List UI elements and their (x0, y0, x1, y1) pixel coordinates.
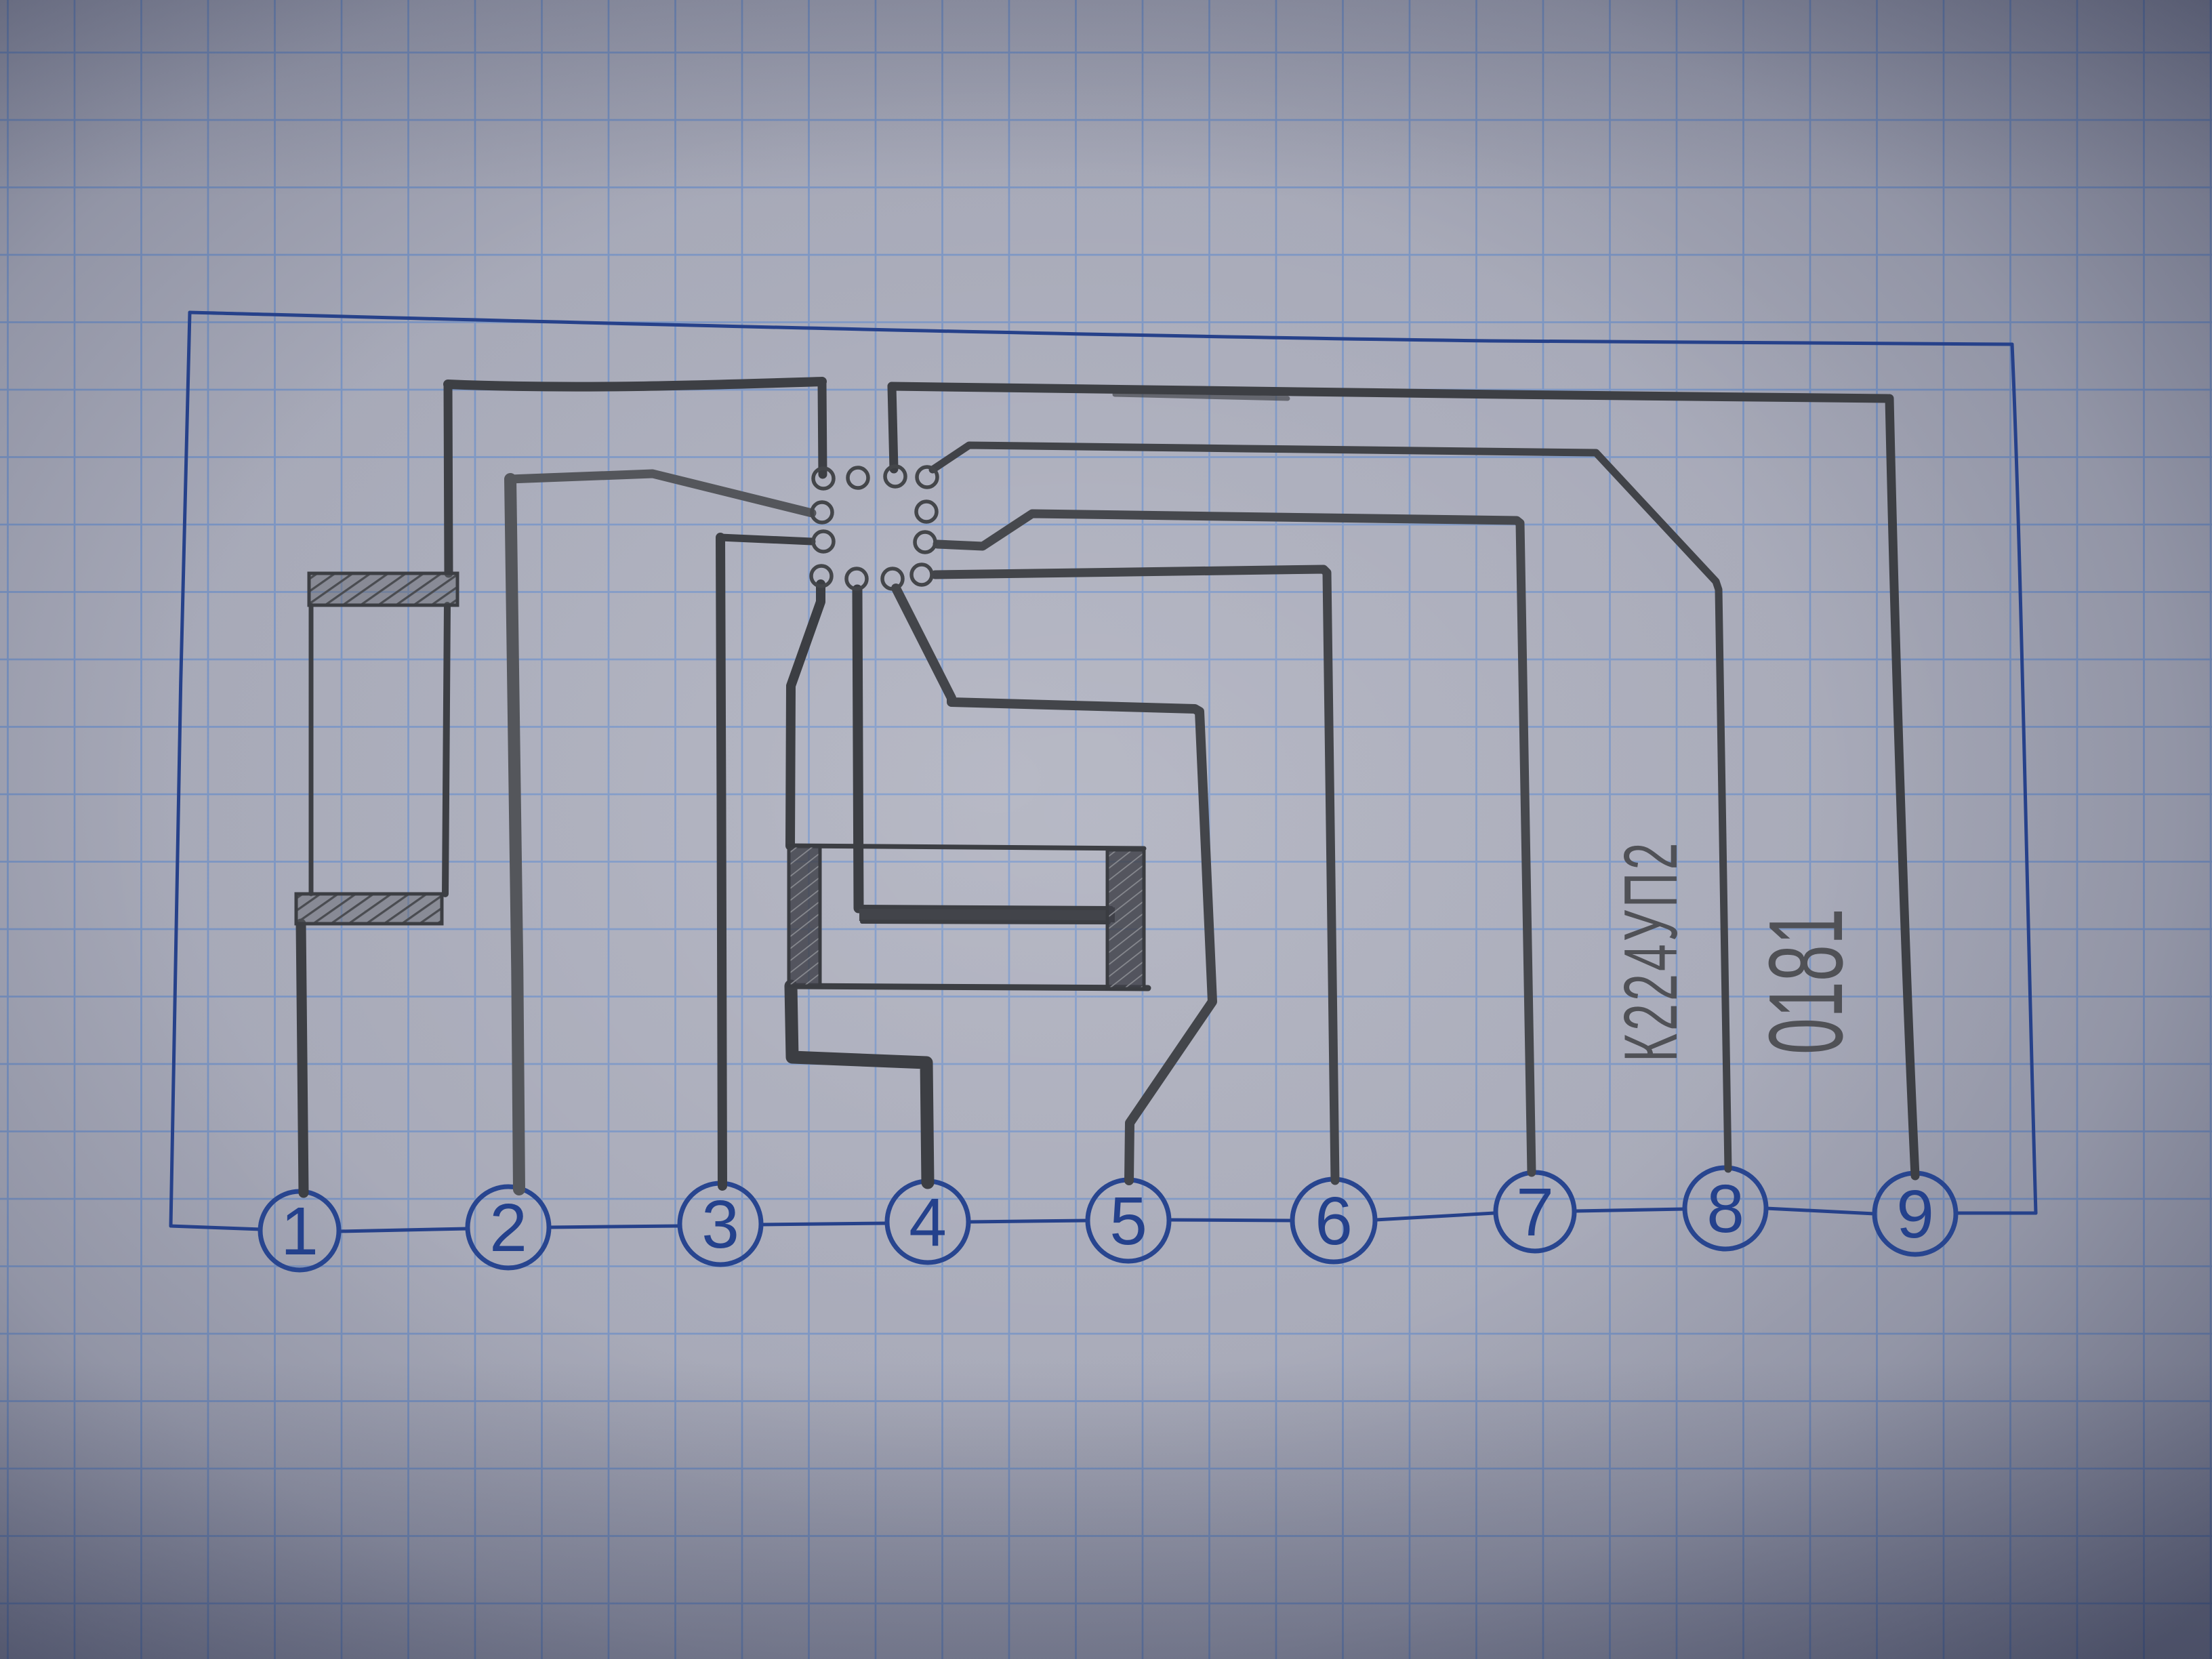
svg-text:9: 9 (1896, 1176, 1934, 1252)
svg-text:6: 6 (1315, 1183, 1353, 1259)
svg-text:1: 1 (281, 1193, 319, 1269)
svg-text:3: 3 (701, 1187, 739, 1263)
svg-text:4: 4 (909, 1185, 947, 1261)
svg-text:5: 5 (1109, 1183, 1147, 1259)
svg-text:7: 7 (1516, 1174, 1554, 1250)
svg-text:8: 8 (1706, 1171, 1744, 1247)
svg-text:0181: 0181 (1748, 908, 1865, 1054)
svg-text:2: 2 (489, 1190, 527, 1266)
svg-text:К224УП2: К224УП2 (1608, 840, 1693, 1062)
